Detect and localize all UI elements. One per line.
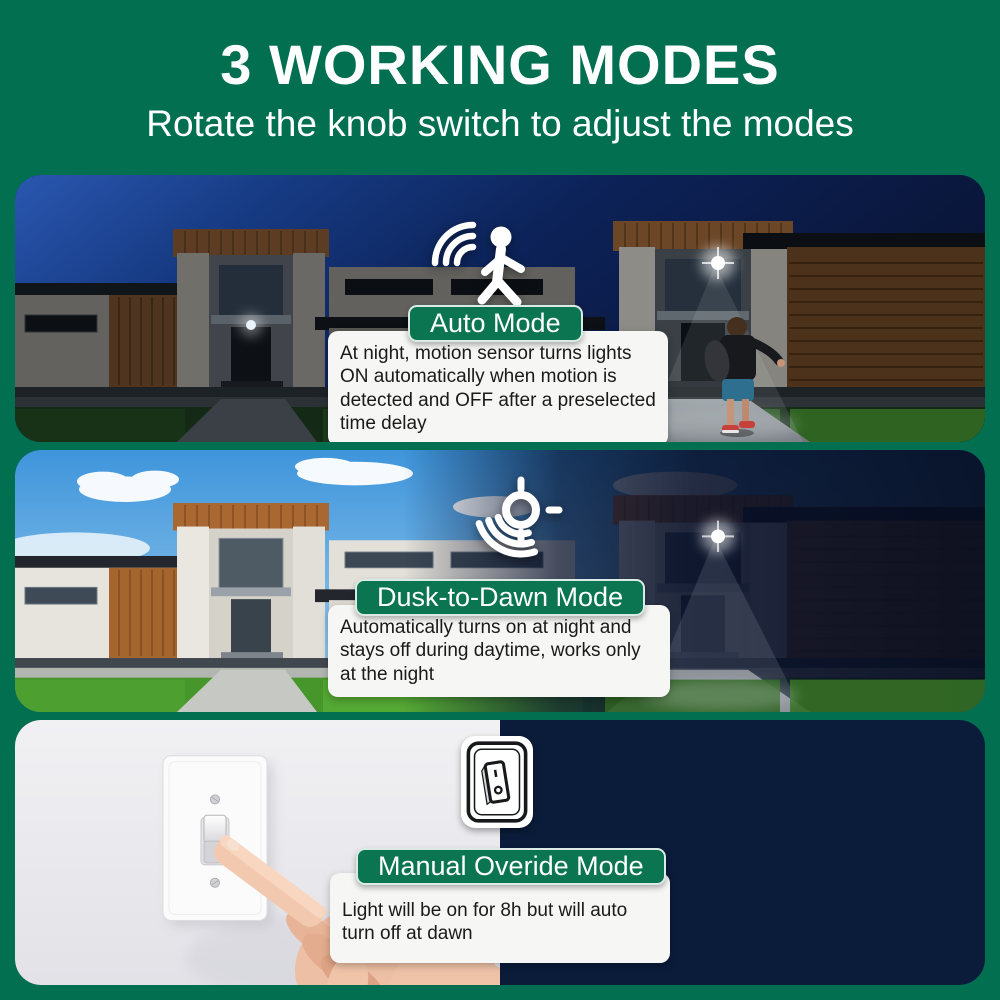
- panel-manual-overide-mode: Manual Overide Mode Light will be on for…: [15, 720, 985, 985]
- motion-sensor-icon: [413, 211, 545, 305]
- dusk-to-dawn-sun-icon: [455, 474, 575, 564]
- mode-badge-dusk-to-dawn: Dusk-to-Dawn Mode: [355, 579, 645, 616]
- page-title: 3 WORKING MODES: [0, 36, 1000, 95]
- mode-description-manual-overide: Light will be on for 8h but will auto tu…: [330, 873, 670, 963]
- panel-auto-mode: Auto Mode At night, motion sensor turns …: [15, 175, 985, 442]
- mode-description-dusk-to-dawn: Automatically turns on at night and stay…: [328, 605, 670, 697]
- infographic-canvas: 3 WORKING MODES Rotate the knob switch t…: [0, 0, 1000, 1000]
- panel-dusk-to-dawn-mode: Dusk-to-Dawn Mode Automatically turns on…: [15, 450, 985, 712]
- page-subtitle: Rotate the knob switch to adjust the mod…: [0, 104, 1000, 145]
- mode-description-auto: At night, motion sensor turns lights ON …: [328, 331, 668, 442]
- mode-badge-manual-overide: Manual Overide Mode: [356, 848, 666, 885]
- header: 3 WORKING MODES Rotate the knob switch t…: [0, 36, 1000, 144]
- mode-badge-auto: Auto Mode: [408, 305, 583, 342]
- manual-rocker-switch-icon: [461, 736, 533, 828]
